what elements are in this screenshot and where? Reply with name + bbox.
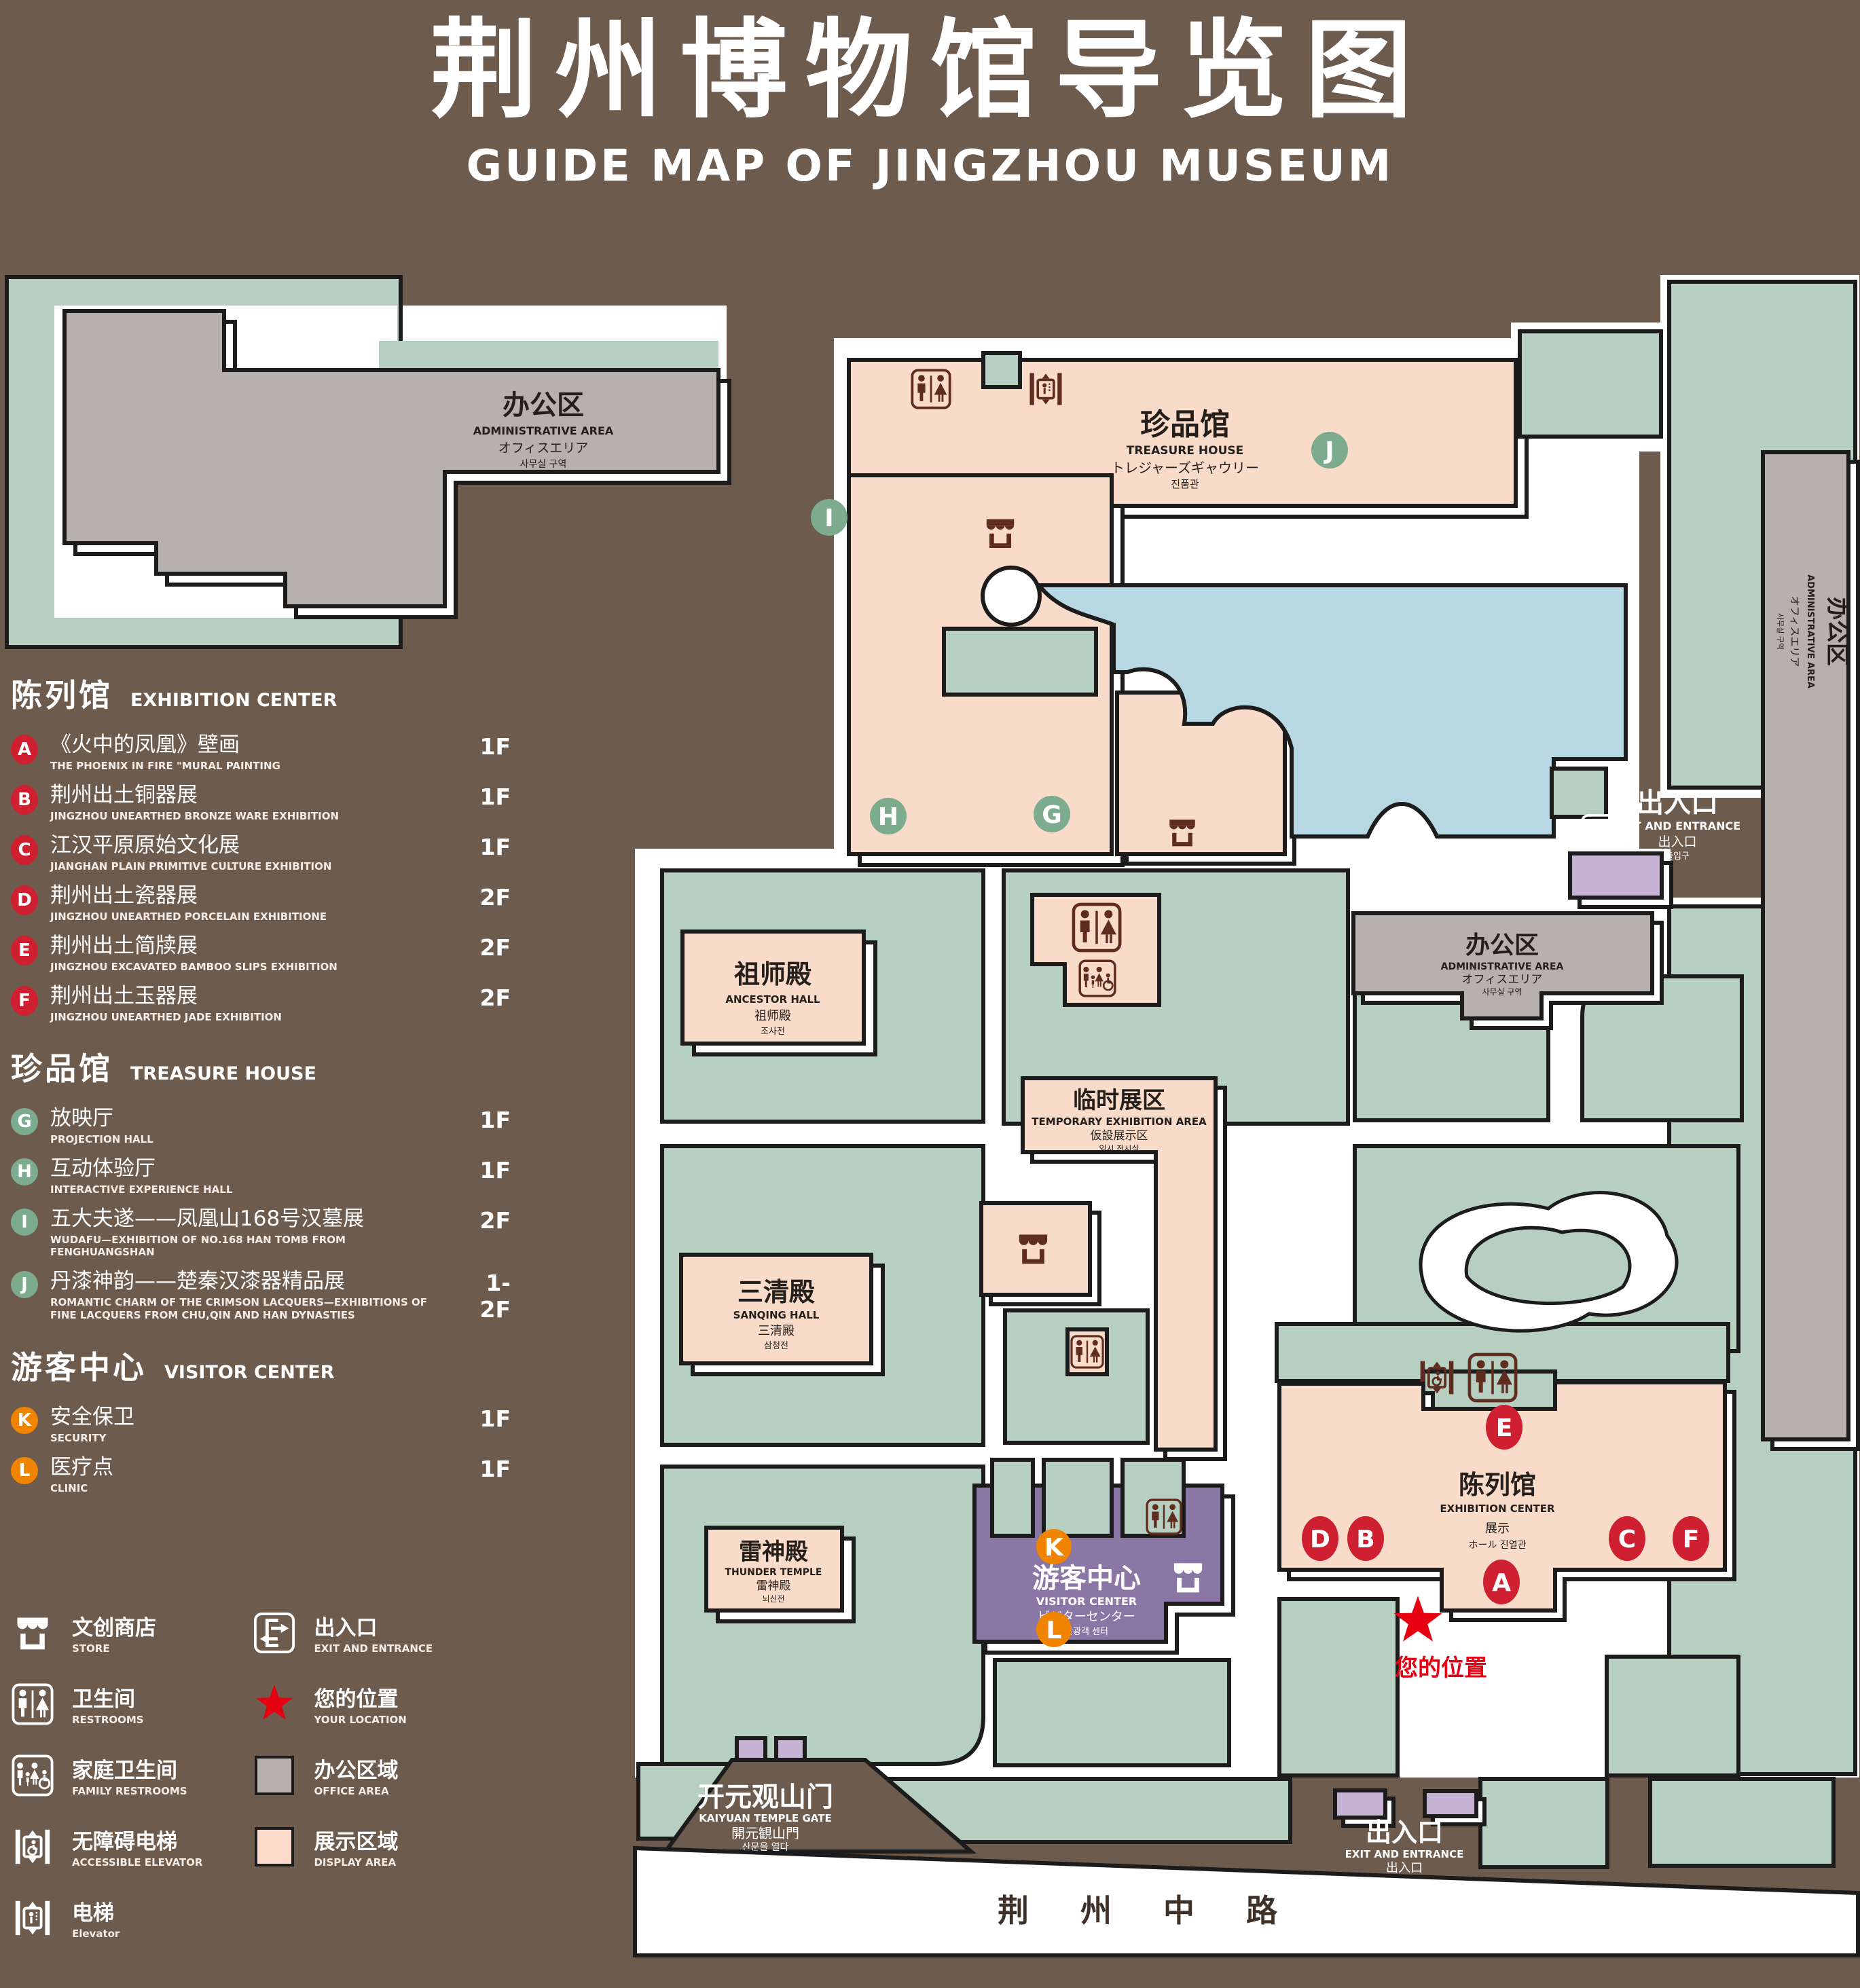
floor-label: 1F bbox=[463, 1405, 515, 1432]
badge-G: G bbox=[1034, 796, 1070, 832]
svg-text:游客中心: 游客中心 bbox=[1032, 1563, 1141, 1594]
svg-text:三清殿: 三清殿 bbox=[737, 1277, 815, 1307]
svg-text:KAIYUAN TEMPLE GATE: KAIYUAN TEMPLE GATE bbox=[699, 1812, 831, 1824]
badge-J: J bbox=[1311, 432, 1348, 468]
floor-label: 1F bbox=[463, 733, 515, 760]
svg-text:ANCESTOR HALL: ANCESTOR HALL bbox=[725, 993, 820, 1006]
svg-text:EXHIBITION CENTER: EXHIBITION CENTER bbox=[1440, 1503, 1555, 1515]
svg-text:トレジャーズギャウリー: トレジャーズギャウリー bbox=[1111, 460, 1259, 476]
svg-text:出入口: 出入口 bbox=[1366, 1818, 1443, 1847]
badge-B: B bbox=[1347, 1516, 1384, 1561]
svg-text:ホール 진열관: ホール 진열관 bbox=[1468, 1540, 1526, 1551]
legend-section-treasure-house: 珍品馆 TREASURE HOUSE bbox=[11, 1044, 515, 1089]
exit-icon bbox=[253, 1611, 296, 1655]
floor-label: 2F bbox=[463, 884, 515, 910]
svg-text:삼청전: 삼청전 bbox=[764, 1341, 788, 1351]
svg-text:TEMPORARY EXHIBITION AREA: TEMPORARY EXHIBITION AREA bbox=[1032, 1116, 1207, 1128]
svg-text:办公区: 办公区 bbox=[1823, 597, 1850, 666]
badge-K: K bbox=[11, 1407, 38, 1434]
svg-text:A: A bbox=[1492, 1569, 1511, 1597]
legend-accessible-elevator: 无障碍电梯ACCESSIBLE ELEVATOR bbox=[11, 1824, 202, 1869]
floor-label: 1-2F bbox=[463, 1270, 515, 1323]
location-star-icon bbox=[253, 1682, 296, 1726]
svg-text:조사전: 조사전 bbox=[761, 1027, 785, 1037]
svg-text:珍品馆: 珍品馆 bbox=[1140, 407, 1230, 442]
svg-text:您的位置: 您的位置 bbox=[1395, 1655, 1487, 1682]
legend-item-C: C 江汉平原原始文化展JIANGHAN PLAIN PRIMITIVE CULT… bbox=[11, 834, 515, 873]
svg-text:仮設展示区: 仮設展示区 bbox=[1091, 1129, 1148, 1143]
treasure-house-building: 珍品馆 TREASURE HOUSE トレジャーズギャウリー 진품관 bbox=[849, 353, 1626, 865]
svg-text:雷神殿: 雷神殿 bbox=[739, 1539, 808, 1566]
legend-item-B: B 荆州出土铜器展JINGZHOU UNEARTHED BRONZE WARE … bbox=[11, 784, 515, 823]
legend-display-area: 展示区域DISPLAY AREA bbox=[253, 1824, 433, 1869]
floor-label: 1F bbox=[463, 1157, 515, 1183]
small-building bbox=[1425, 1791, 1476, 1816]
svg-text:TREASURE HOUSE: TREASURE HOUSE bbox=[1127, 444, 1243, 458]
svg-text:オフィスエリア: オフィスエリア bbox=[1462, 973, 1543, 987]
badge-F: F bbox=[1673, 1516, 1709, 1561]
svg-text:L: L bbox=[1046, 1617, 1062, 1644]
svg-text:출입구: 출입구 bbox=[1665, 851, 1690, 862]
badge-L: L bbox=[11, 1457, 38, 1484]
administrative-area-right-column: 办公区 ADMINISTRATIVE AREA オフィスエリア 사무실 구역 bbox=[1763, 452, 1858, 1449]
svg-text:K: K bbox=[1044, 1534, 1064, 1562]
svg-text:E: E bbox=[1496, 1414, 1513, 1442]
svg-text:사무실 구역: 사무실 구역 bbox=[1776, 613, 1785, 650]
legend-item-L: L 医疗点CLINIC 1F bbox=[11, 1456, 515, 1495]
legend-section-visitor-center: 游客中心 VISITOR CENTER bbox=[11, 1343, 515, 1388]
section-title-cn: 陈列馆 bbox=[11, 671, 113, 716]
svg-text:EXIT AND ENTRANCE: EXIT AND ENTRANCE bbox=[1614, 820, 1740, 832]
svg-text:办公区: 办公区 bbox=[503, 390, 584, 421]
badge-J: J bbox=[11, 1271, 38, 1298]
display-area-swatch bbox=[253, 1825, 296, 1869]
exit-entrance-bottom: 出入口 EXIT AND ENTRANCE 出入口 출입구 bbox=[1335, 1790, 1484, 1886]
svg-text:出入口: 出入口 bbox=[1637, 788, 1718, 819]
badge-F: F bbox=[11, 986, 38, 1016]
floor-label: 1F bbox=[463, 834, 515, 860]
badge-G: G bbox=[11, 1108, 38, 1135]
floor-label: 1F bbox=[463, 1107, 515, 1133]
accessible-elevator-icon bbox=[11, 1825, 54, 1869]
badge-A: A bbox=[11, 735, 38, 765]
legend-your-location: 您的位置YOUR LOCATION bbox=[253, 1682, 433, 1726]
legend-store: 文创商店STORE bbox=[11, 1610, 202, 1655]
floor-label: 2F bbox=[463, 934, 515, 961]
svg-text:開元観山門: 開元観山門 bbox=[731, 1825, 799, 1841]
store-kiosk bbox=[981, 1203, 1090, 1295]
store-icon bbox=[11, 1611, 54, 1655]
svg-text:진품관: 진품관 bbox=[1171, 478, 1199, 490]
legend-item-D: D 荆州出土瓷器展JINGZHOU UNEARTHED PORCELAIN EX… bbox=[11, 884, 515, 923]
legend-item-A: A 《火中的凤凰》壁画THE PHOENIX IN FIRE "MURAL PA… bbox=[11, 733, 515, 773]
office-area-swatch bbox=[253, 1754, 296, 1797]
legend-item-H: H 互动体验厅INTERACTIVE EXPERIENCE HALL 1F bbox=[11, 1157, 515, 1196]
legend-section-exhibition-center: 陈列馆 EXHIBITION CENTER bbox=[11, 671, 515, 716]
badge-E: E bbox=[11, 936, 38, 965]
svg-text:G: G bbox=[1042, 801, 1062, 829]
svg-text:I: I bbox=[824, 504, 833, 532]
badge-E: E bbox=[1486, 1405, 1522, 1450]
legend-elevator: 电梯Elevator bbox=[11, 1896, 202, 1940]
section-title-cn: 珍品馆 bbox=[11, 1044, 113, 1089]
svg-text:ADMINISTRATIVE AREA: ADMINISTRATIVE AREA bbox=[1441, 961, 1564, 972]
svg-text:展示: 展示 bbox=[1485, 1522, 1510, 1536]
legend-restrooms: 卫生间RESTROOMS bbox=[11, 1682, 202, 1726]
svg-text:开元观山门: 开元观山门 bbox=[697, 1782, 833, 1813]
svg-text:VISITOR CENTER: VISITOR CENTER bbox=[1036, 1595, 1137, 1608]
legend-item-I: I 五大夫遂——凤凰山168号汉墓展WUDAFU—EXHIBITION OF N… bbox=[11, 1207, 515, 1259]
svg-text:SANQING HALL: SANQING HALL bbox=[733, 1309, 820, 1321]
svg-text:祖师殿: 祖师殿 bbox=[754, 1009, 791, 1023]
svg-text:B: B bbox=[1356, 1526, 1374, 1553]
guide-map-poster: 荆州博物馆导览图 GUIDE MAP OF JINGZHOU MUSEUM bbox=[0, 0, 1860, 1988]
badge-D: D bbox=[11, 885, 38, 915]
small-building bbox=[1570, 853, 1662, 898]
section-title-en: VISITOR CENTER bbox=[164, 1362, 335, 1383]
badge-L: L bbox=[1036, 1612, 1072, 1647]
badge-H: H bbox=[11, 1158, 38, 1185]
svg-text:ADMINISTRATIVE AREA: ADMINISTRATIVE AREA bbox=[1805, 574, 1815, 688]
small-building bbox=[1335, 1790, 1385, 1818]
svg-text:陈列馆: 陈列馆 bbox=[1459, 1470, 1536, 1500]
floor-label: 2F bbox=[463, 1207, 515, 1234]
elevator-icon bbox=[11, 1896, 54, 1940]
svg-text:EXIT AND ENTRANCE: EXIT AND ENTRANCE bbox=[1345, 1848, 1464, 1860]
svg-text:三清殿: 三清殿 bbox=[758, 1324, 795, 1338]
road-name: 荆 州 中 路 bbox=[998, 1892, 1298, 1929]
badge-K: K bbox=[1036, 1529, 1072, 1564]
legend-item-E: E 荆州出土简牍展JINGZHOU EXCAVATED BAMBOO SLIPS… bbox=[11, 934, 515, 974]
badge-C: C bbox=[1609, 1516, 1645, 1561]
svg-text:雷神殿: 雷神殿 bbox=[756, 1579, 791, 1593]
svg-text:사무실 구역: 사무실 구역 bbox=[520, 459, 567, 470]
legend-item-G: G 放映厅PROJECTION HALL 1F bbox=[11, 1107, 515, 1146]
badge-D: D bbox=[1302, 1516, 1338, 1561]
floor-label: 2F bbox=[463, 984, 515, 1011]
section-title-en: EXHIBITION CENTER bbox=[130, 690, 337, 711]
badge-I: I bbox=[11, 1209, 38, 1236]
svg-text:办公区: 办公区 bbox=[1465, 932, 1539, 959]
svg-text:사무실 구역: 사무실 구역 bbox=[1482, 987, 1522, 997]
section-title-cn: 游客中心 bbox=[11, 1343, 147, 1388]
legend-item-F: F 荆州出土玉器展JINGZHOU UNEARTHED JADE EXHIBIT… bbox=[11, 984, 515, 1024]
symbol-legend: 文创商店STORE 卫生间RESTROOMS 家庭卫生间FAMILY RESTR… bbox=[11, 1610, 433, 1940]
family-restrooms-icon bbox=[11, 1754, 54, 1797]
legend-panel: 陈列馆 EXHIBITION CENTER A 《火中的凤凰》壁画THE PHO… bbox=[11, 671, 515, 1506]
garden bbox=[1421, 1193, 1677, 1331]
legend-exit-entrance: 出入口EXIT AND ENTRANCE bbox=[253, 1610, 433, 1655]
legend-item-J: J 丹漆神韵——楚秦汉漆器精品展ROMANTIC CHARM OF THE CR… bbox=[11, 1270, 515, 1323]
svg-text:뇌신전: 뇌신전 bbox=[762, 1594, 784, 1604]
badge-I: I bbox=[811, 499, 847, 536]
section-title-en: TREASURE HOUSE bbox=[130, 1063, 316, 1084]
svg-text:オフィスエリア: オフィスエリア bbox=[498, 441, 589, 456]
thunder-temple-building: 雷神殿 THUNDER TEMPLE 雷神殿 뇌신전 bbox=[706, 1528, 854, 1621]
svg-text:临时展区: 临时展区 bbox=[1073, 1087, 1165, 1114]
badge-A: A bbox=[1483, 1560, 1520, 1604]
svg-text:D: D bbox=[1310, 1526, 1330, 1553]
svg-text:F: F bbox=[1683, 1526, 1700, 1553]
svg-text:임시 전시실: 임시 전시실 bbox=[1099, 1144, 1139, 1154]
legend-family-restrooms: 家庭卫生间FAMILY RESTROOMS bbox=[11, 1753, 202, 1797]
restrooms-icon bbox=[11, 1682, 54, 1726]
badge-C: C bbox=[11, 835, 38, 865]
svg-text:オフィスエリア: オフィスエリア bbox=[1789, 596, 1801, 667]
svg-text:出入口: 出入口 bbox=[1386, 1861, 1423, 1875]
ancestor-hall-building: 祖师殿 ANCESTOR HALL 祖师殿 조사전 bbox=[682, 932, 875, 1054]
svg-text:祖师殿: 祖师殿 bbox=[734, 959, 812, 989]
svg-text:ADMINISTRATIVE AREA: ADMINISTRATIVE AREA bbox=[473, 424, 614, 437]
badge-H: H bbox=[870, 798, 907, 834]
svg-text:出入口: 出入口 bbox=[1658, 834, 1696, 849]
badge-B: B bbox=[11, 785, 38, 815]
sanqing-hall-building: 三清殿 SANQING HALL 三清殿 삼청전 bbox=[681, 1255, 883, 1374]
legend-office-area: 办公区域OFFICE AREA bbox=[253, 1753, 433, 1797]
svg-text:C: C bbox=[1618, 1526, 1636, 1553]
svg-text:THUNDER TEMPLE: THUNDER TEMPLE bbox=[725, 1567, 822, 1578]
legend-item-K: K 安全保卫SECURITY 1F bbox=[11, 1405, 515, 1445]
floor-label: 1F bbox=[463, 1456, 515, 1482]
svg-text:J: J bbox=[1323, 437, 1334, 465]
svg-text:H: H bbox=[878, 803, 898, 831]
floor-label: 1F bbox=[463, 784, 515, 810]
